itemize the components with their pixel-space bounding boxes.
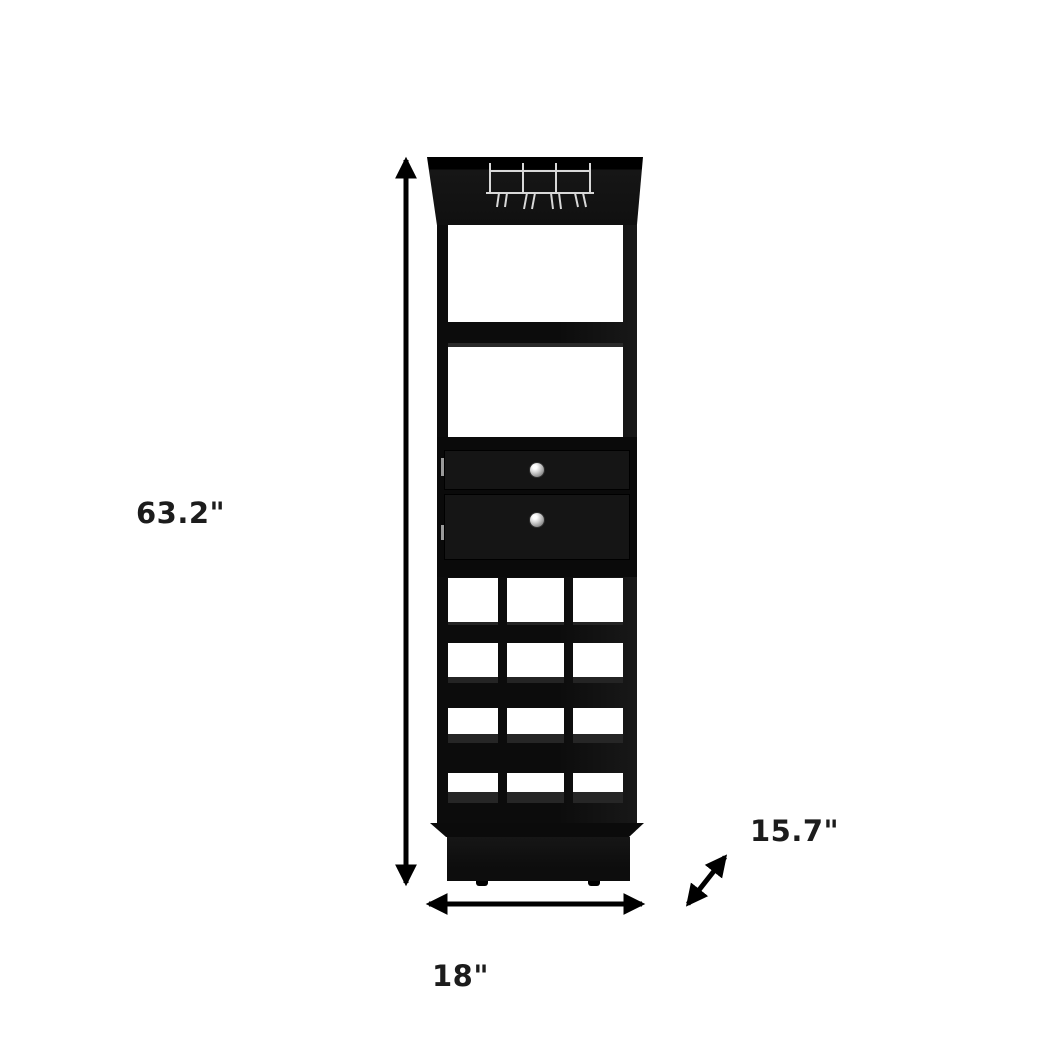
cabinet-foot-left — [476, 881, 488, 886]
drawer-lower — [444, 494, 630, 560]
wine-cubby — [573, 643, 623, 683]
wine-cubby — [448, 773, 498, 803]
hinge-mark-upper — [441, 458, 444, 476]
cabinet-plinth — [447, 837, 630, 881]
stemware-rack-icon — [427, 157, 643, 225]
cabinet-body — [437, 225, 637, 823]
wine-cubby-row-2 — [448, 643, 623, 683]
width-dimension-label: 18" — [432, 962, 489, 991]
wine-cubby — [573, 578, 623, 625]
depth-dimension-arrow — [688, 857, 725, 904]
wine-cubby — [507, 708, 564, 743]
wine-cubby — [448, 643, 498, 683]
wine-cubby-row-1 — [448, 578, 623, 625]
open-shelf-middle — [448, 343, 623, 437]
cabinet-top-crown — [427, 157, 643, 225]
drawer-lower-knob-icon — [530, 513, 544, 527]
height-dimension-label: 63.2" — [136, 499, 225, 528]
open-shelf-top — [448, 225, 623, 322]
drawer-section — [437, 437, 637, 577]
wine-cubby — [507, 773, 564, 803]
depth-dimension-label: 15.7" — [750, 817, 839, 846]
cabinet-foot-right — [588, 881, 600, 886]
wine-cubby-row-4 — [448, 773, 623, 803]
wine-cubby — [573, 708, 623, 743]
hinge-mark-lower — [441, 525, 444, 540]
diagram-canvas: 63.2" 18" 15.7" — [0, 0, 1040, 1040]
wine-cubby — [448, 708, 498, 743]
wine-cubby-row-3 — [448, 708, 623, 743]
wine-cubby — [507, 643, 564, 683]
cabinet-base-flare — [430, 823, 644, 837]
wine-cubby — [448, 578, 498, 625]
drawer-upper-knob-icon — [530, 463, 544, 477]
wine-cubby — [507, 578, 564, 625]
wine-cubby — [573, 773, 623, 803]
